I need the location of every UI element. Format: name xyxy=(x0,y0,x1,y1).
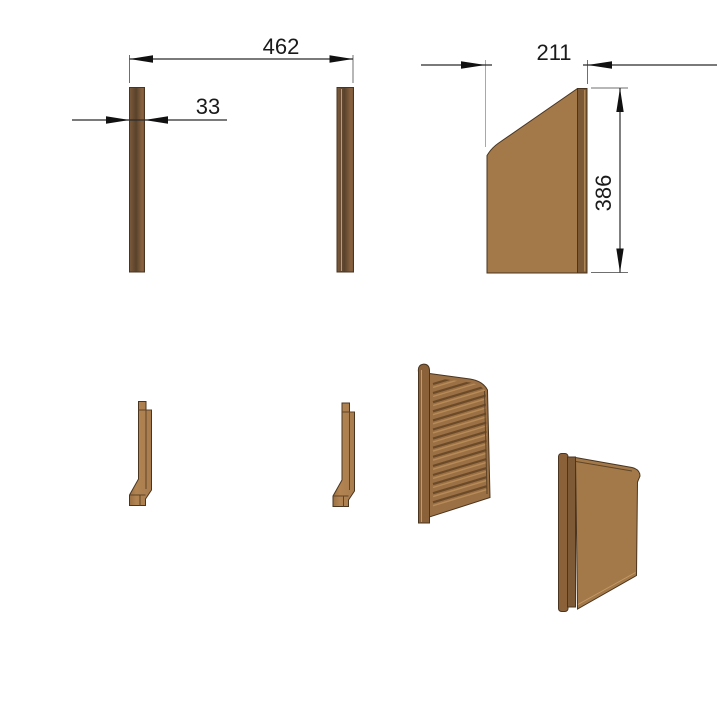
dimension-label: 462 xyxy=(263,34,300,59)
arrowhead-left xyxy=(461,61,486,68)
trim-profile-right xyxy=(333,403,355,507)
technical-drawing-canvas: 462 33 211 386 xyxy=(0,0,720,720)
dimension-label: 386 xyxy=(591,175,616,212)
profile-right-body xyxy=(333,403,355,507)
side-panel-face xyxy=(487,89,587,274)
side-trim-bar-right xyxy=(337,88,354,273)
dim-panel-height: 386 xyxy=(591,88,628,273)
dim-bar-thickness: 33 xyxy=(72,94,227,124)
arrowhead-top xyxy=(616,88,623,112)
dimension-label: 211 xyxy=(536,40,571,65)
side-panel-right-edge-strip xyxy=(578,89,588,274)
arrowhead-right xyxy=(145,116,169,123)
arrowhead-left xyxy=(130,55,154,63)
bar-left-body xyxy=(130,88,145,273)
side-panel-flat-view xyxy=(487,89,587,274)
dim-overall-width: 462 xyxy=(130,34,354,83)
arrowhead-bottom xyxy=(616,249,623,273)
louvered-panel xyxy=(418,364,490,523)
louvered-panel-left-column xyxy=(418,364,429,523)
arrowhead-right xyxy=(330,55,354,63)
arrowhead-right xyxy=(588,61,613,68)
plain-panel-left-recess xyxy=(568,457,576,607)
dimension-label: 33 xyxy=(196,94,220,119)
plain-panel-face xyxy=(576,458,641,610)
profile-left-body xyxy=(130,402,152,506)
plain-panel-left-rail xyxy=(559,454,569,612)
arrowhead-left xyxy=(106,116,130,123)
bar-right-body xyxy=(337,88,354,273)
side-trim-bar-left xyxy=(130,88,145,273)
plain-panel xyxy=(559,454,641,612)
trim-profile-left xyxy=(130,402,152,506)
parts-diagram: 462 33 211 386 xyxy=(0,0,720,720)
